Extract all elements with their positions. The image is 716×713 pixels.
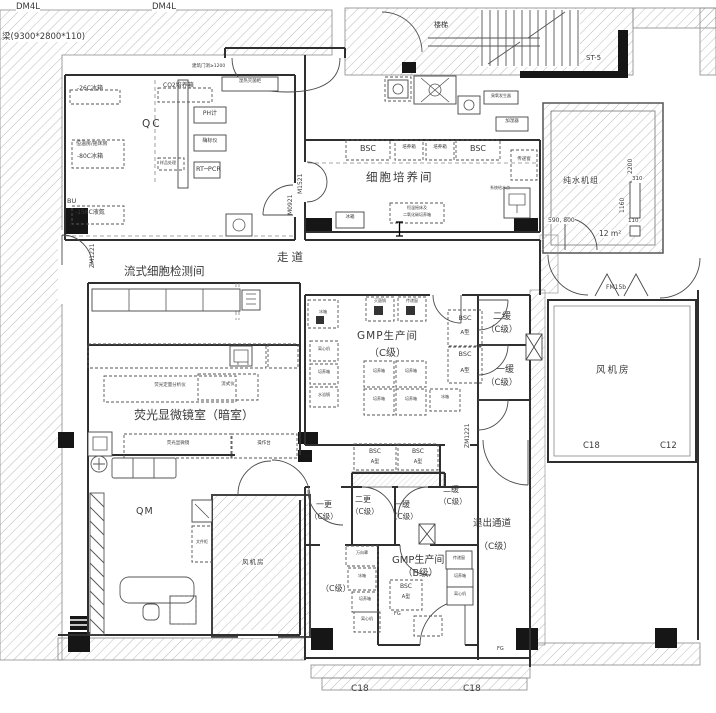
equip-b-left-3: 培养箱: [352, 597, 378, 601]
equip-bsc-c2: BSC: [448, 351, 482, 358]
dim-dm4l-1: DM4L: [16, 3, 40, 12]
equip-cabinet: 文件柜: [193, 540, 211, 544]
equip-fridge-cc: 冰箱: [336, 216, 364, 221]
equip-bsc-c1: BSC: [448, 315, 482, 322]
room-buffer1-b-grade: （C级）: [390, 513, 418, 521]
equip-b-left-2: 冰箱: [348, 574, 376, 578]
equip-co2-incubator: CO2培养箱: [163, 83, 194, 89]
room-change2: 二更: [355, 496, 371, 504]
note-shaker-1: 恒温摇床及: [392, 206, 442, 210]
room-buffer2-c: 二缓: [493, 313, 511, 322]
beam-dimension: 梁(9300*2800*110): [2, 33, 85, 42]
equip-worktable: 操作台: [231, 442, 297, 447]
equip-bsc-b3-type: A型: [390, 595, 422, 600]
room-buffer2-b: 二缓: [443, 486, 459, 494]
equip-fluor-microscope: 荧光显微镜: [124, 442, 232, 447]
equip-c-top-1: 灭菌锅: [366, 299, 394, 303]
floorplan-labels: DM4LDM4L梁(9300*2800*110)楼梯ST-5建筑门洞≥1200Q…: [0, 0, 716, 713]
room-c-grade-left: （C级）: [321, 585, 351, 593]
room-gmp-b-2: （B级）: [403, 569, 438, 579]
equip-shaker-room: 恒温房/摇床房: [76, 142, 108, 147]
equip-bsc-c1-type: A型: [448, 331, 482, 337]
mark-c18-right: C18: [583, 442, 600, 451]
dim-110: 110: [628, 219, 639, 225]
equip-bsc-b1: BSC: [354, 449, 396, 455]
equip-incubator-2: 培养箱: [426, 146, 454, 151]
room-buffer1-c-grade: （C级）: [486, 379, 517, 388]
room-qm: QM: [136, 507, 154, 517]
equip-c-center-4: 培养箱: [396, 397, 426, 401]
door-zm1221-left: ZM1221: [90, 243, 96, 268]
entry-note: 建筑门洞≥1200: [192, 65, 225, 70]
equip-flow-cytometer: 流式仪: [198, 383, 258, 388]
room-qc: QC: [142, 119, 162, 130]
equip-autoclave: 湿热灭菌柜: [222, 80, 278, 85]
equip-bsc-b3: BSC: [390, 584, 422, 590]
equip-rt-pcr: RT─PCR: [196, 166, 221, 173]
room-fan-2: 风机房: [242, 559, 265, 566]
equip-ln2-tank: -156C液氮: [75, 210, 105, 216]
equip-freezer-26: -26C冰箱: [77, 86, 103, 92]
equip-b-right-1: 传递窗: [446, 556, 472, 560]
mark-bu: BU: [67, 198, 76, 205]
door-m0921: M0921: [288, 195, 294, 215]
dim-590-800: 590, 800: [548, 218, 575, 224]
room-buffer2-c-grade: （C级）: [486, 326, 517, 335]
room-exit-corridor-grade: （C级）: [479, 543, 512, 552]
floorplan-canvas: DM4LDM4L梁(9300*2800*110)楼梯ST-5建筑门洞≥1200Q…: [0, 0, 716, 713]
dim-310: 310: [632, 177, 643, 183]
equip-c-center-1: 培养箱: [364, 369, 394, 373]
note-water-point: 系统给水点: [490, 186, 510, 190]
equip-ph-meter: PH计: [194, 111, 226, 117]
equip-c-left-3: 培养箱: [310, 370, 338, 374]
dim-2200: 2200: [628, 159, 634, 174]
equip-b-right-3: 离心机: [447, 592, 473, 596]
equip-bsc-b2-type: A型: [398, 460, 438, 465]
dim-area-12: 12 m²: [599, 230, 621, 238]
note-shaker-2: 二氧化碳培养箱: [390, 213, 444, 217]
equip-b-left-1: 万向罩: [346, 551, 378, 555]
room-flow-cytometry: 流式细胞检测间: [124, 265, 205, 277]
room-gmp-b-1: GMP生产间: [392, 556, 444, 567]
stair-code: ST-5: [586, 55, 601, 62]
dim-1160: 1160: [620, 198, 626, 213]
equip-ozone: 臭氧发生器: [484, 94, 518, 98]
room-change1: 一更: [316, 501, 332, 509]
equip-pass-window-cc: 传递窗: [511, 158, 537, 163]
equip-humidifier: 加湿器: [496, 120, 528, 125]
mark-fg-2: FG: [497, 647, 504, 652]
mark-c12: C12: [660, 442, 677, 451]
mark-fg-1: FG: [394, 612, 401, 617]
room-gmp-c-1: GMP生产间: [357, 331, 418, 342]
equip-c-left-2: 离心机: [310, 347, 338, 351]
equip-b-right-2: 培养箱: [447, 574, 473, 578]
room-buffer1-c: 一缓: [496, 366, 514, 375]
corridor-label: 走道: [277, 251, 306, 263]
equip-bsc-c2-type: A型: [448, 369, 482, 375]
mark-c18-bottom-1: C18: [351, 685, 369, 694]
equip-bsc-b2: BSC: [398, 449, 438, 455]
mark-c18-bottom-2: C18: [463, 685, 481, 694]
door-zm1221-right: ZM1221: [465, 423, 471, 448]
stair-label: 楼梯: [434, 22, 448, 29]
room-buffer2-b-grade: （C级）: [439, 498, 467, 506]
equip-bsc-1: BSC: [346, 145, 390, 153]
room-buffer1-b: 一缓: [394, 501, 410, 509]
equip-c-left-4: 水浴锅: [310, 393, 338, 397]
equip-bsc-2: BSC: [456, 145, 500, 153]
room-fluorescence: 荧光显微镜室（暗室）: [134, 409, 254, 422]
room-exit-corridor: 退出通道: [473, 519, 511, 529]
equip-sample-bench: 样品处理: [160, 161, 176, 165]
equip-b-left-4: 离心机: [354, 617, 380, 621]
room-cell-culture: 细胞培养间: [366, 171, 434, 183]
door-m1521: M1521: [298, 174, 304, 194]
equip-c-left-1: 冰箱: [308, 310, 338, 314]
equip-freezer-80: -80C冰箱: [77, 154, 103, 160]
equip-c-top-2: 传递窗: [398, 299, 426, 303]
equip-bsc-b1-type: A型: [354, 460, 396, 465]
equip-c-center-3: 培养箱: [364, 397, 394, 401]
equip-plate-reader: 酶标仪: [194, 139, 226, 144]
room-gmp-c-2: （C级）: [369, 349, 406, 360]
equip-c-center-5: 冰箱: [430, 395, 460, 399]
room-change1-grade: （C级）: [310, 513, 338, 521]
room-pure-water: 纯水机组: [563, 177, 599, 185]
dim-dm4l-2: DM4L: [152, 3, 176, 12]
room-change2-grade: （C级）: [351, 508, 379, 516]
equip-incubator-1: 培养箱: [395, 146, 423, 151]
equip-c-center-2: 培养箱: [396, 369, 426, 373]
door-fm15b: FM15b: [606, 285, 626, 291]
room-fan-right: 风机房: [596, 366, 631, 376]
